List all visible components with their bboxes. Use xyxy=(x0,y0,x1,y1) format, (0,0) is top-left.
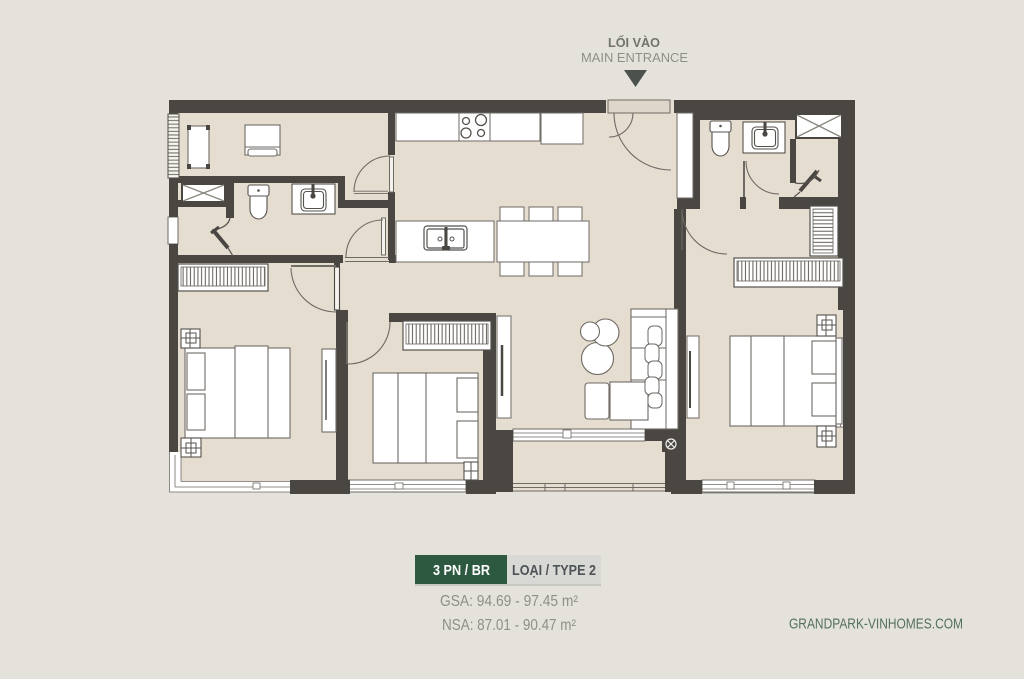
svg-text:GRANDPARK-VINHOMES.COM: GRANDPARK-VINHOMES.COM xyxy=(789,617,963,633)
svg-text:MAIN ENTRANCE: MAIN ENTRANCE xyxy=(581,51,688,65)
svg-text:NSA: 87.01 - 90.47 m²: NSA: 87.01 - 90.47 m² xyxy=(442,617,576,634)
svg-text:3 PN / BR: 3 PN / BR xyxy=(433,562,490,579)
svg-text:GSA: 94.69 - 97.45 m²: GSA: 94.69 - 97.45 m² xyxy=(440,593,578,610)
svg-text:LOẠI / TYPE 2: LOẠI / TYPE 2 xyxy=(512,562,596,579)
svg-text:LỐI VÀO: LỐI VÀO xyxy=(608,35,660,50)
